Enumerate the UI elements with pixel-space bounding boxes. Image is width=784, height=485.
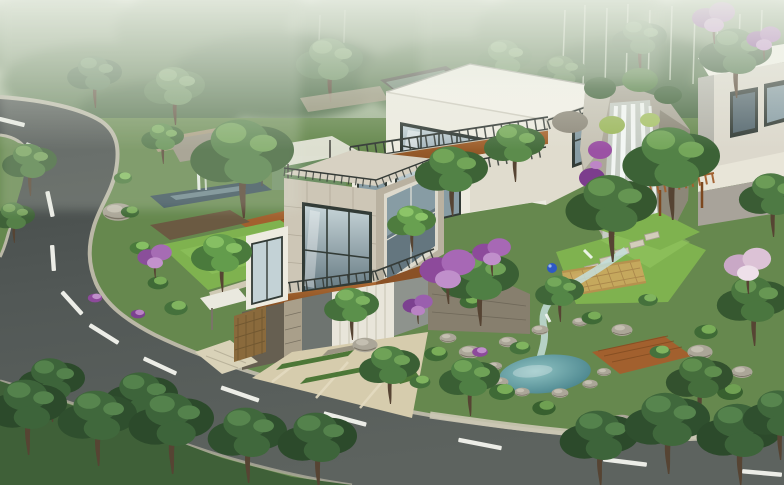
shrub: [582, 312, 603, 325]
shrub: [148, 277, 169, 290]
ornament-highlight: [548, 264, 551, 267]
garage-wall: [302, 292, 332, 356]
lower-west-volume: [246, 226, 288, 310]
shrub: [532, 401, 555, 415]
shrub: [694, 325, 717, 339]
shrub: [638, 294, 658, 306]
rendering-canvas: Hillside Villa Landscape — Architectural…: [0, 0, 784, 485]
architectural-rendering: Hillside Villa Landscape — Architectural…: [0, 0, 784, 485]
blue-sphere-ornament: [547, 263, 557, 273]
shrub: [510, 342, 531, 355]
shrub: [410, 376, 431, 389]
stone-pillar: [284, 298, 302, 360]
shrub: [164, 301, 187, 315]
shrub: [650, 346, 671, 359]
flower-shrub: [88, 294, 102, 303]
flower-shrub: [472, 347, 488, 357]
flower-shrub: [131, 310, 145, 319]
shrub: [424, 347, 447, 361]
